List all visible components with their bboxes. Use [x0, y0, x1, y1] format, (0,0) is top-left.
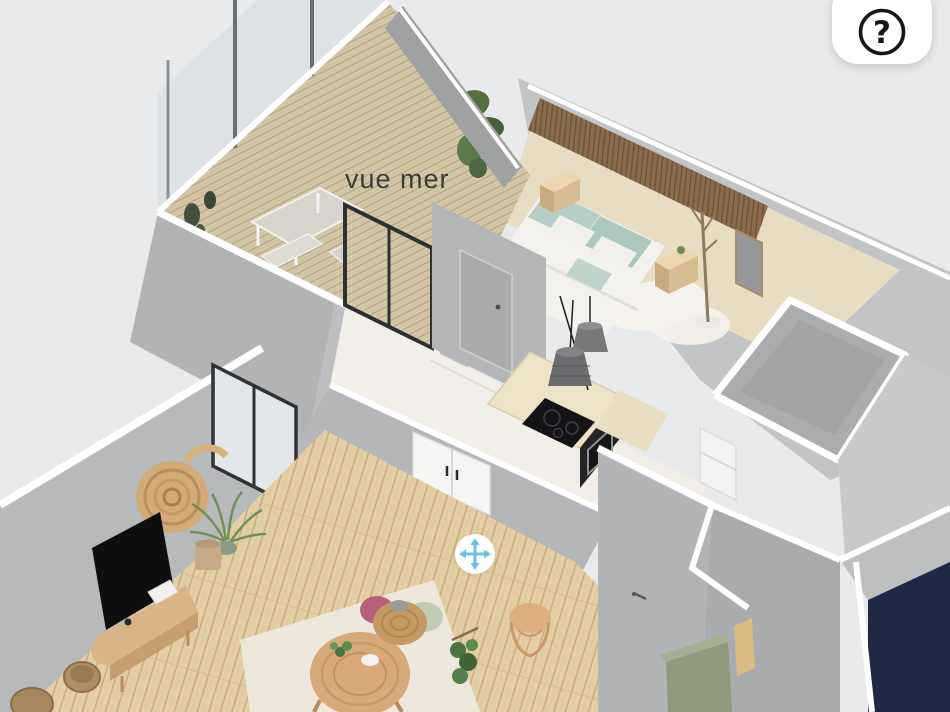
move-arrows-glyph	[458, 537, 492, 571]
help-glyph: ?	[873, 15, 891, 51]
figurine	[125, 619, 132, 626]
room-label-terrace[interactable]: vue mer	[345, 164, 450, 194]
door-handle	[496, 305, 501, 310]
floorplan-canvas[interactable]: vue mer	[0, 0, 950, 712]
wood-stool[interactable]	[734, 618, 755, 676]
help-button[interactable]: ?	[832, 0, 932, 64]
move-pan-icon[interactable]	[455, 534, 495, 574]
rattan-planter[interactable]	[195, 540, 221, 571]
help-question-icon: ?	[832, 0, 932, 64]
table-dish	[361, 654, 379, 666]
floorplan-app: vue mer ?	[0, 0, 950, 712]
